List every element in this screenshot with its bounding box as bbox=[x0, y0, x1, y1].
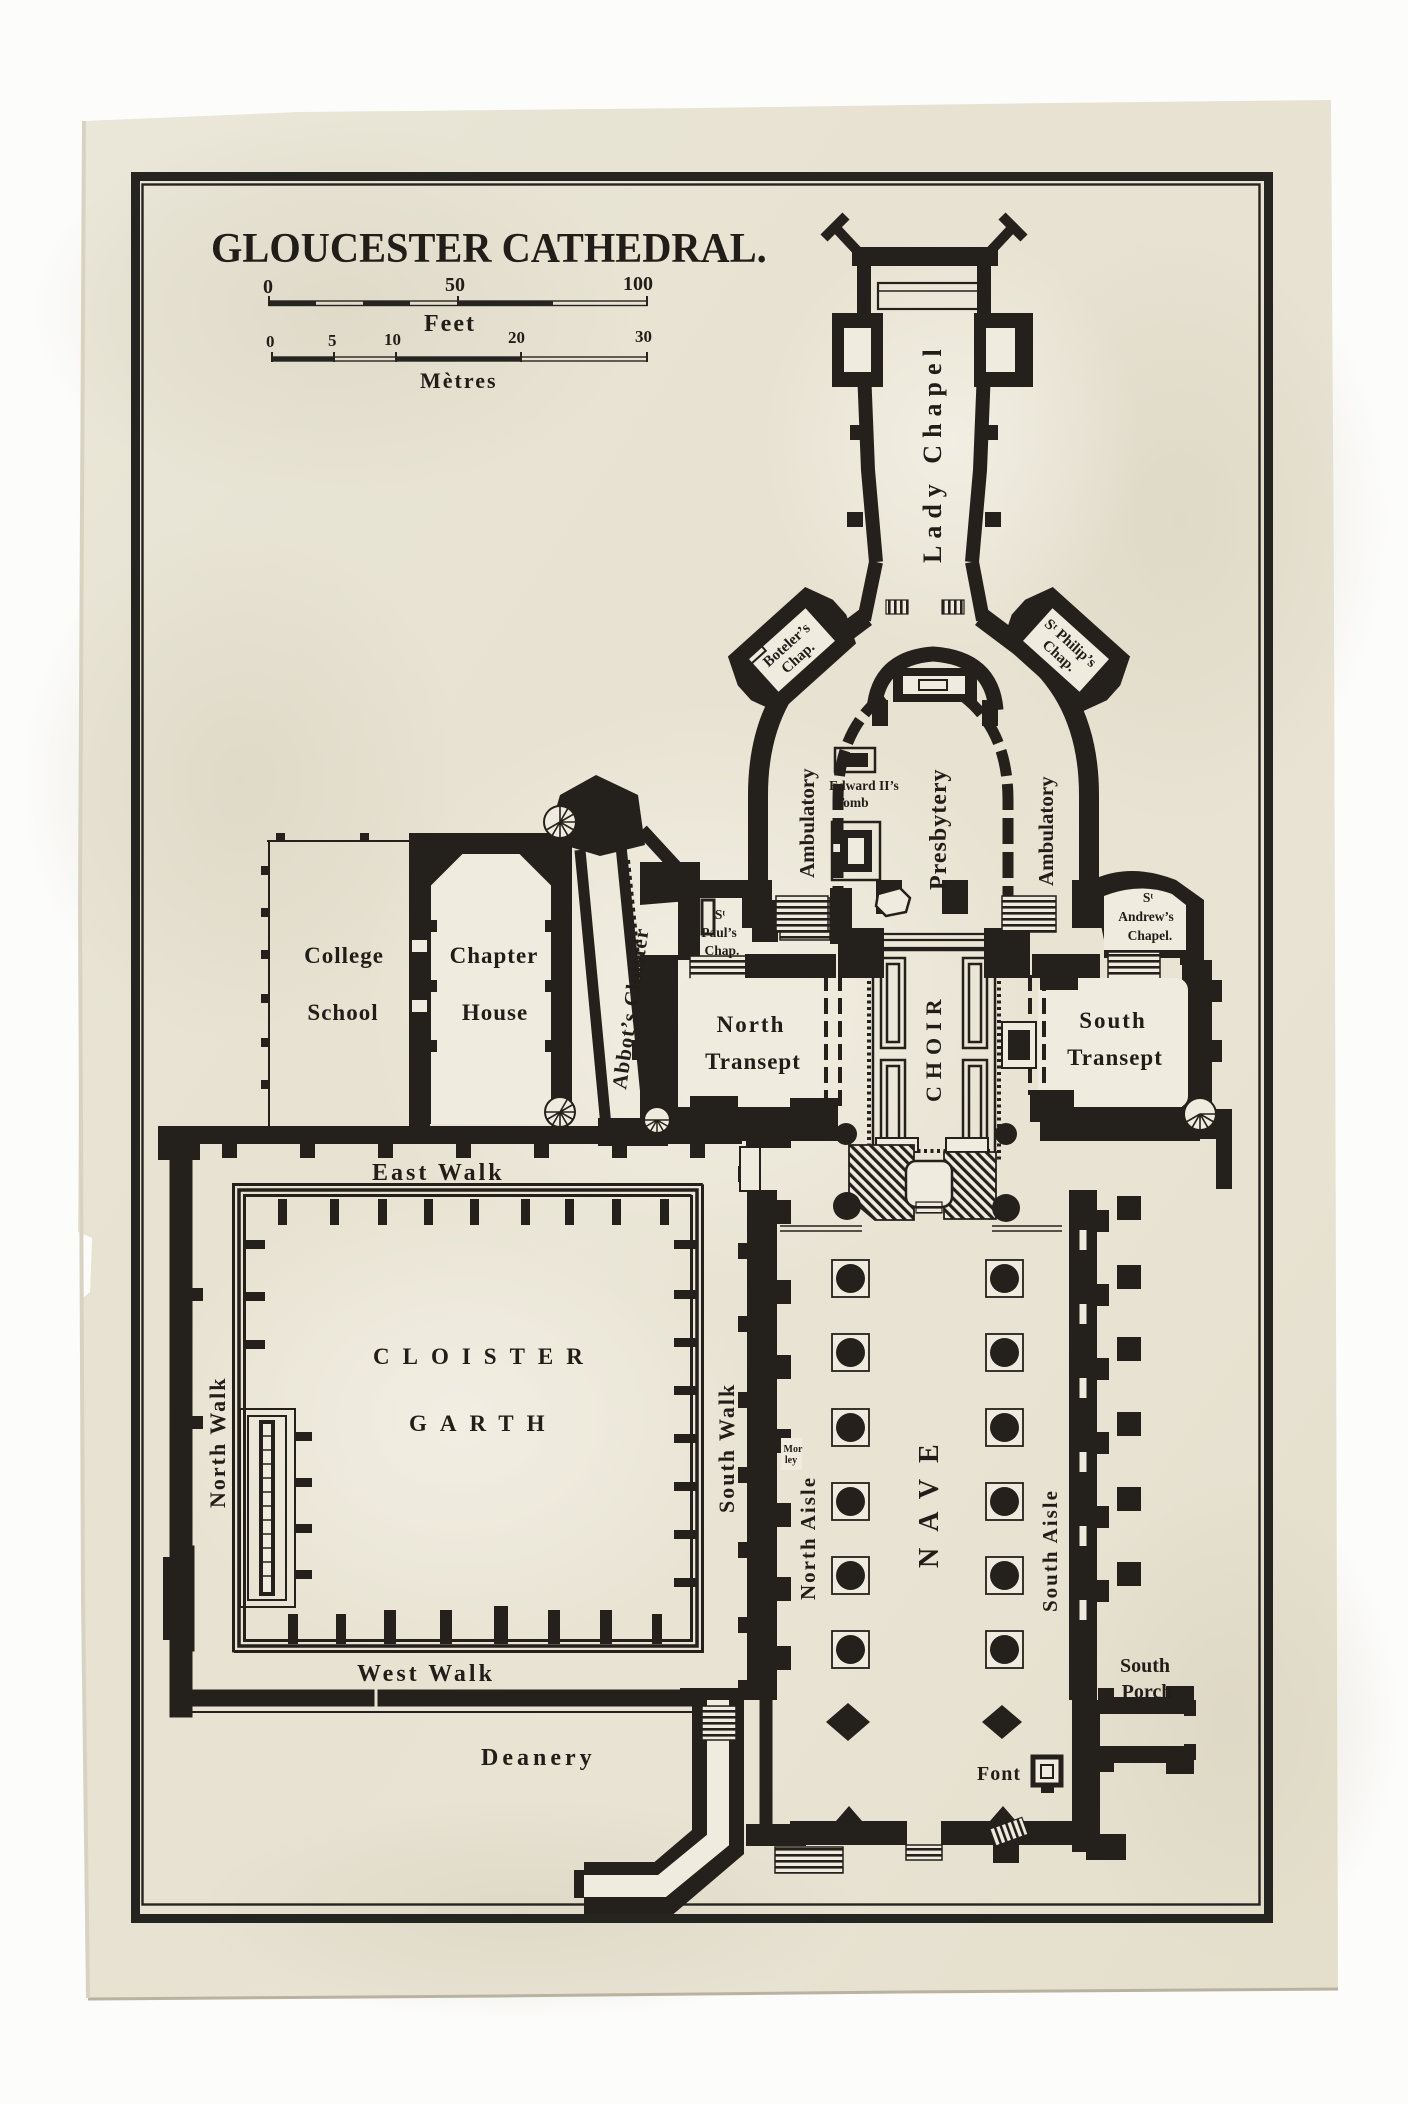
svg-text:30: 30 bbox=[635, 327, 652, 346]
svg-text:50: 50 bbox=[445, 274, 465, 296]
svg-text:Sᵗ: Sᵗ bbox=[1143, 890, 1154, 905]
svg-text:Edward II’s: Edward II’s bbox=[829, 778, 899, 793]
svg-text:East Walk: East Walk bbox=[372, 1160, 505, 1186]
svg-text:Presbytery: Presbytery bbox=[926, 768, 952, 890]
svg-text:Chapter: Chapter bbox=[450, 943, 539, 968]
svg-text:CHOIR: CHOIR bbox=[921, 992, 946, 1102]
svg-text:CLOISTER: CLOISTER bbox=[373, 1344, 596, 1369]
svg-text:School: School bbox=[307, 1000, 378, 1025]
svg-text:Ambulatory: Ambulatory bbox=[795, 768, 819, 878]
svg-text:Feet: Feet bbox=[424, 311, 476, 337]
svg-text:Tomb: Tomb bbox=[835, 795, 868, 810]
svg-text:ley: ley bbox=[785, 1455, 797, 1466]
svg-text:GARTH: GARTH bbox=[409, 1411, 558, 1436]
svg-text:Deanery: Deanery bbox=[481, 1745, 596, 1771]
svg-text:20: 20 bbox=[508, 328, 525, 347]
svg-text:Lady Chapel: Lady Chapel bbox=[918, 342, 947, 563]
svg-text:0: 0 bbox=[263, 276, 273, 298]
svg-text:10: 10 bbox=[384, 330, 401, 349]
svg-text:North Walk: North Walk bbox=[205, 1377, 230, 1508]
svg-text:Paul’s: Paul’s bbox=[701, 925, 737, 940]
svg-text:Ambulatory: Ambulatory bbox=[1034, 776, 1058, 886]
svg-text:Font: Font bbox=[977, 1763, 1021, 1785]
svg-text:West Walk: West Walk bbox=[357, 1661, 495, 1687]
svg-text:100: 100 bbox=[623, 273, 653, 295]
svg-text:North Aisle: North Aisle bbox=[796, 1476, 820, 1600]
svg-text:Transept: Transept bbox=[705, 1049, 801, 1074]
svg-text:Chap.: Chap. bbox=[705, 943, 740, 958]
svg-text:5: 5 bbox=[328, 331, 337, 350]
svg-text:North: North bbox=[717, 1012, 786, 1037]
svg-text:House: House bbox=[462, 1000, 528, 1025]
svg-text:Mètres: Mètres bbox=[420, 368, 498, 393]
svg-text:Mor: Mor bbox=[784, 1444, 803, 1455]
svg-text:0: 0 bbox=[266, 332, 275, 351]
svg-text:South: South bbox=[1079, 1008, 1147, 1033]
svg-text:South: South bbox=[1120, 1655, 1170, 1677]
svg-text:NAVE: NAVE bbox=[914, 1428, 945, 1568]
svg-text:College: College bbox=[304, 943, 384, 968]
svg-text:Transept: Transept bbox=[1067, 1045, 1163, 1070]
svg-text:Sᵗ: Sᵗ bbox=[715, 907, 726, 922]
svg-text:South Aisle: South Aisle bbox=[1038, 1489, 1062, 1612]
svg-text:Chapel.: Chapel. bbox=[1128, 928, 1173, 943]
svg-text:GLOUCESTER CATHEDRAL.: GLOUCESTER CATHEDRAL. bbox=[211, 224, 767, 271]
svg-text:Porch: Porch bbox=[1122, 1681, 1173, 1703]
svg-text:Andrew’s: Andrew’s bbox=[1118, 909, 1174, 924]
svg-text:South Walk: South Walk bbox=[714, 1383, 739, 1513]
